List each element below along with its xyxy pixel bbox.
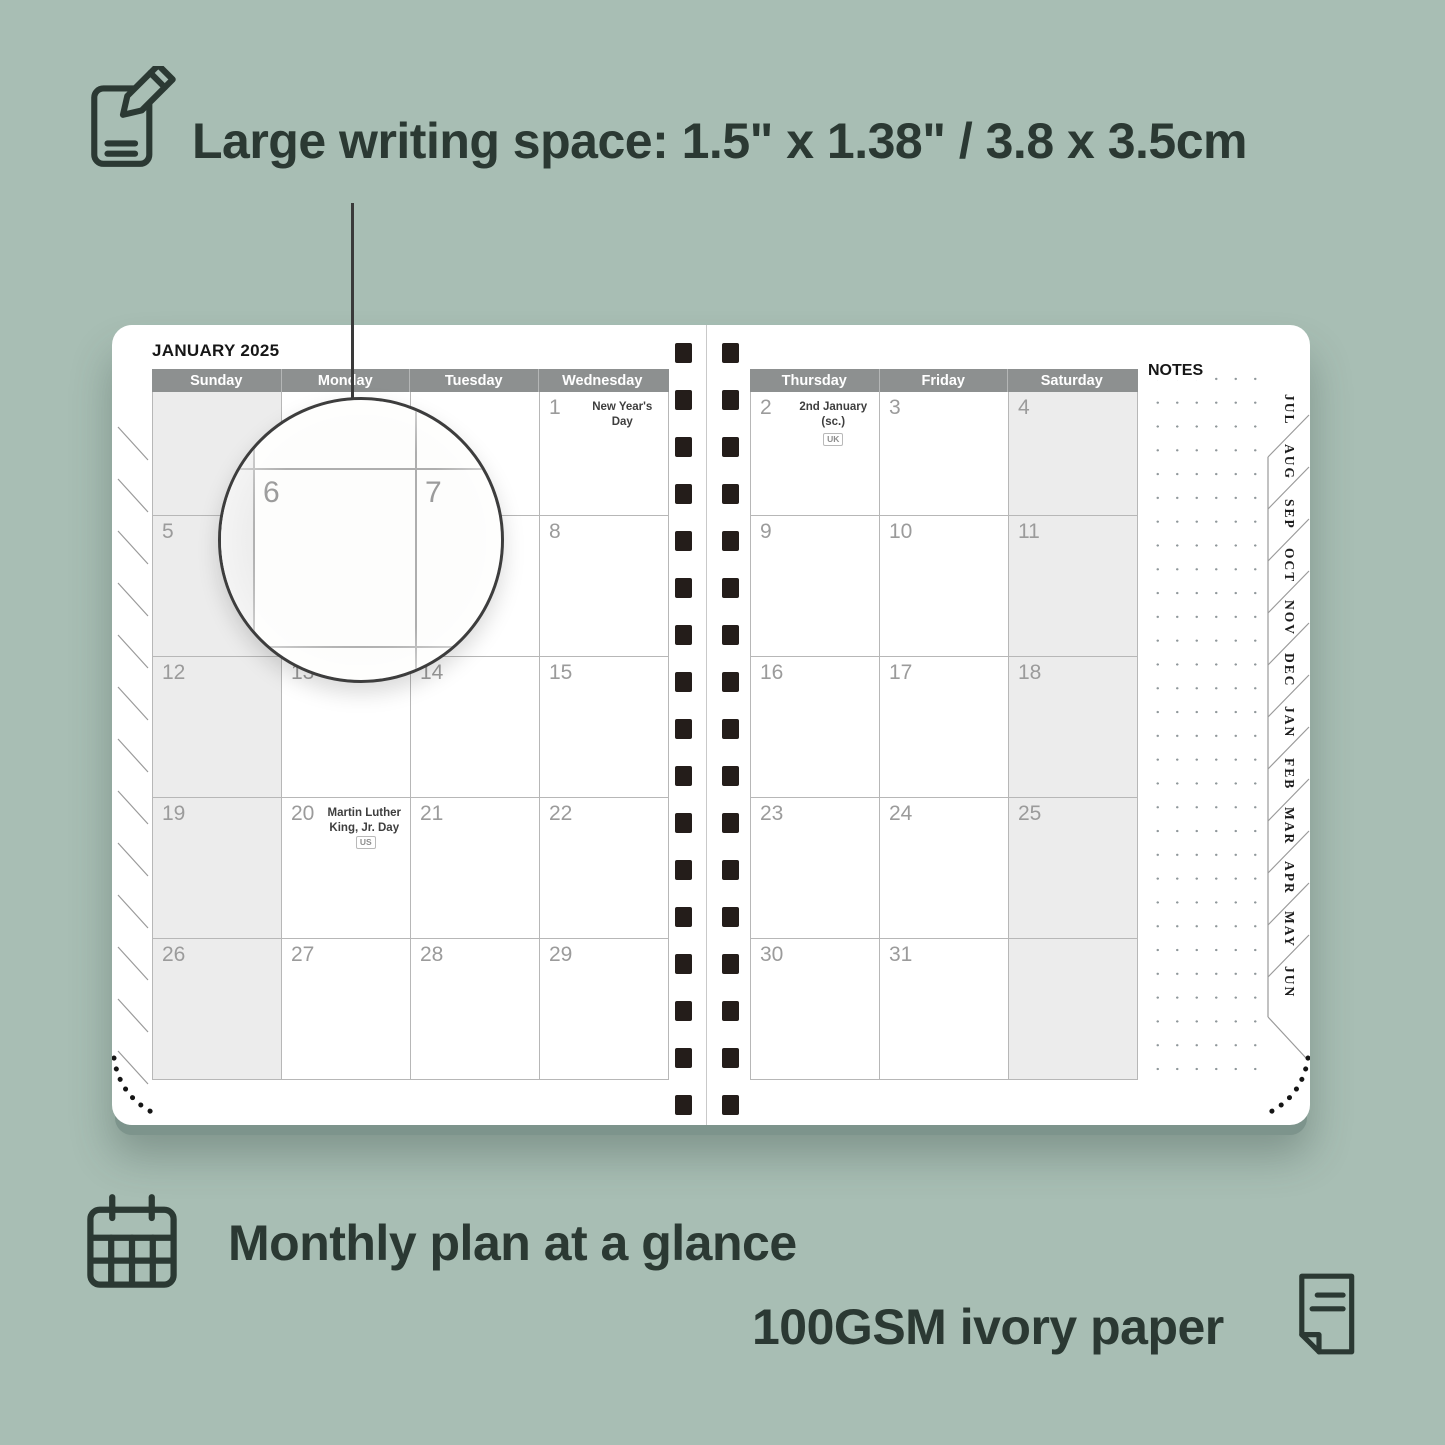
day-cell-23: 23: [751, 798, 879, 938]
binding-hole: [675, 813, 692, 833]
binding-hole: [675, 625, 692, 645]
product-infographic: Large writing space: 1.5" x 1.38" / 3.8 …: [0, 0, 1445, 1445]
day-number: 2: [760, 396, 772, 420]
edge-hatch-line: [118, 635, 148, 668]
day-number: 12: [162, 661, 185, 685]
binding-hole: [722, 766, 739, 786]
binding-hole: [675, 1048, 692, 1068]
holiday-label: New Year's Day: [584, 400, 661, 430]
day-header-tuesday: Tuesday: [409, 369, 538, 392]
edge-hatch-line: [118, 791, 148, 824]
day-cell-30: 30: [751, 939, 879, 1079]
note-pencil-icon: [82, 66, 184, 172]
binding-hole: [722, 484, 739, 504]
month-tab-oct: OCT: [1268, 540, 1310, 592]
edge-hatch-line: [118, 479, 148, 512]
binding-hole: [675, 531, 692, 551]
day-cell-4: 4: [1009, 392, 1137, 515]
day-number: 9: [760, 520, 772, 544]
day-number: 5: [162, 520, 174, 544]
country-badge: UK: [823, 433, 843, 446]
day-number: 31: [889, 943, 912, 967]
feature-monthly-plan-text: Monthly plan at a glance: [228, 1214, 797, 1272]
day-header-saturday: Saturday: [1007, 369, 1136, 392]
day-cell-18: 18: [1009, 657, 1137, 797]
binding-hole: [722, 672, 739, 692]
day-cell-3: 3: [880, 392, 1008, 515]
binding-hole: [675, 578, 692, 598]
month-tab-feb: FEB: [1268, 748, 1310, 800]
day-cell-1: 1New Year's Day: [540, 392, 668, 515]
month-title: JANUARY 2025: [152, 341, 279, 361]
calendar-right-weeks: 22nd January (sc.)UK34910111617182324253…: [750, 392, 1138, 1080]
day-cell-26: 26: [153, 939, 281, 1079]
day-number: 22: [549, 802, 572, 826]
binding-hole: [675, 1001, 692, 1021]
day-number: 21: [420, 802, 443, 826]
day-cell-27: 27: [282, 939, 410, 1079]
binding-hole: [722, 954, 739, 974]
binding-hole: [675, 390, 692, 410]
day-number: 16: [760, 661, 783, 685]
day-header-monday: Monday: [281, 369, 410, 392]
day-cell-15: 15: [540, 657, 668, 797]
magnifier-glow: [221, 400, 501, 680]
day-number: 18: [1018, 661, 1041, 685]
day-cell-8: 8: [540, 516, 668, 656]
day-number: 30: [760, 943, 783, 967]
day-header-friday: Friday: [879, 369, 1008, 392]
edge-hatch-line: [118, 531, 148, 564]
calendar-left-header-row: SundayMondayTuesdayWednesday: [152, 369, 669, 392]
day-number: 24: [889, 802, 912, 826]
binding-hole: [722, 1095, 739, 1115]
day-number: 26: [162, 943, 185, 967]
month-tab-jul: JUL: [1268, 384, 1310, 436]
month-tab-sep: SEP: [1268, 488, 1310, 540]
day-number: 11: [1018, 520, 1040, 544]
page-gap-line: [706, 325, 707, 1125]
calendar-right-header-row: ThursdayFridaySaturday: [750, 369, 1138, 392]
day-cell-22: 22: [540, 798, 668, 938]
binding-hole: [722, 860, 739, 880]
day-number: 25: [1018, 802, 1041, 826]
edge-hatch-line: [118, 999, 148, 1032]
month-tab-jan: JAN: [1268, 696, 1310, 748]
binding-hole: [722, 531, 739, 551]
month-tab-may: MAY: [1268, 904, 1310, 956]
holiday-label: Martin Luther King, Jr. DayUS: [326, 806, 403, 851]
binding-hole: [675, 437, 692, 457]
binding-hole: [722, 1001, 739, 1021]
day-number: 27: [291, 943, 314, 967]
binding-hole: [675, 719, 692, 739]
day-number: 23: [760, 802, 783, 826]
day-number: 15: [549, 661, 572, 685]
month-tab-apr: APR: [1268, 852, 1310, 904]
day-cell-16: 16: [751, 657, 879, 797]
notes-dot-grid: [1148, 367, 1270, 1081]
binding-hole: [722, 719, 739, 739]
day-cell-21: 21: [411, 798, 539, 938]
magnifier-circle: 6 7: [218, 397, 504, 683]
calendar-right-page: ThursdayFridaySaturday 22nd January (sc.…: [750, 369, 1138, 1080]
day-cell-24: 24: [880, 798, 1008, 938]
day-cell-28: 28: [411, 939, 539, 1079]
binding-hole: [722, 625, 739, 645]
day-cell-11: 11: [1009, 516, 1137, 656]
day-cell-31: 31: [880, 939, 1008, 1079]
day-number: 8: [549, 520, 561, 544]
day-cell-17: 17: [880, 657, 1008, 797]
day-header-thursday: Thursday: [750, 369, 879, 392]
binding-hole: [675, 954, 692, 974]
binding-hole: [722, 907, 739, 927]
feature-paper-text: 100GSM ivory paper: [752, 1298, 1224, 1356]
month-tab-dec: DEC: [1268, 644, 1310, 696]
binding-hole: [675, 672, 692, 692]
day-number: 20: [291, 802, 314, 826]
day-cell-20: 20Martin Luther King, Jr. DayUS: [282, 798, 410, 938]
day-number: 28: [420, 943, 443, 967]
day-number: 4: [1018, 396, 1030, 420]
binding-hole: [722, 813, 739, 833]
binding-hole: [675, 860, 692, 880]
calendar-grid-icon: [80, 1190, 184, 1296]
day-header-sunday: Sunday: [152, 369, 281, 392]
feature-writing-space-text: Large writing space: 1.5" x 1.38" / 3.8 …: [192, 112, 1247, 170]
day-number: 3: [889, 396, 901, 420]
binding-hole: [675, 343, 692, 363]
notes-label: NOTES: [1148, 362, 1211, 380]
day-number: 1: [549, 396, 561, 420]
binding-hole: [722, 390, 739, 410]
binding-hole: [722, 578, 739, 598]
day-cell-29: 29: [540, 939, 668, 1079]
day-header-wednesday: Wednesday: [538, 369, 667, 392]
binding-hole: [675, 484, 692, 504]
month-tab-jun: JUN: [1268, 956, 1310, 1008]
binding-hole: [675, 907, 692, 927]
binding-hole: [675, 766, 692, 786]
edge-hatch-line: [118, 895, 148, 928]
day-cell-12: 12: [153, 657, 281, 797]
month-tab-mar: MAR: [1268, 800, 1310, 852]
edge-hatch-line: [118, 427, 148, 460]
paper-sheet-icon: [1276, 1264, 1362, 1364]
day-cell-25: 25: [1009, 798, 1137, 938]
callout-pointer-line: [351, 203, 354, 403]
binding-hole: [675, 1095, 692, 1115]
binding-hole: [722, 437, 739, 457]
edge-hatch-line: [118, 843, 148, 876]
day-number: 10: [889, 520, 912, 544]
day-cell-14: 14: [411, 657, 539, 797]
day-number: 29: [549, 943, 572, 967]
edge-hatch-line: [118, 947, 148, 980]
binding-hole: [722, 1048, 739, 1068]
holiday-label: 2nd January (sc.)UK: [795, 400, 872, 446]
day-cell-9: 9: [751, 516, 879, 656]
month-tab-nov: NOV: [1268, 592, 1310, 644]
day-cell-empty: [1009, 939, 1137, 1079]
month-tab-aug: AUG: [1268, 436, 1310, 488]
binding-hole: [722, 343, 739, 363]
edge-hatch-line: [118, 687, 148, 720]
day-number: 19: [162, 802, 185, 826]
tab-closing-line: [1268, 1017, 1306, 1058]
day-cell-10: 10: [880, 516, 1008, 656]
day-cell-2: 22nd January (sc.)UK: [751, 392, 879, 515]
edge-hatch-line: [118, 1051, 148, 1084]
day-cell-19: 19: [153, 798, 281, 938]
day-number: 17: [889, 661, 912, 685]
edge-hatch-line: [118, 739, 148, 772]
edge-hatch-line: [118, 583, 148, 616]
country-badge: US: [356, 836, 376, 849]
